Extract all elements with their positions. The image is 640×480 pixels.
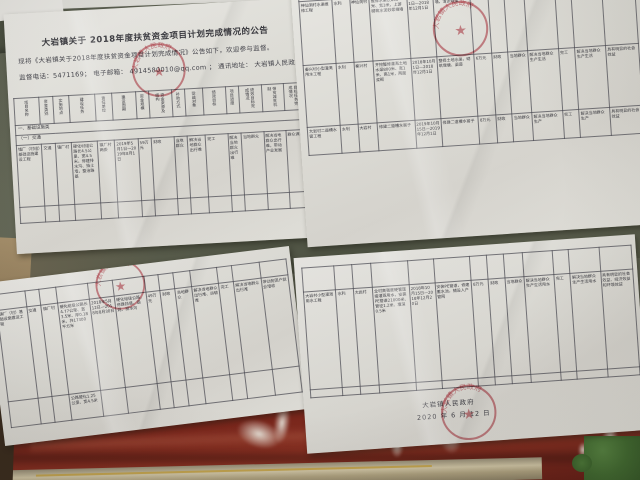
table-cell [191, 197, 210, 214]
table-cell [203, 375, 233, 404]
table-cell [75, 203, 102, 220]
table-cell [245, 194, 268, 211]
project-table: 大岩村小型灌溉用水工程水利大岩村全村高强度硬管连接灌溉用水，安装PE管道2100… [301, 245, 640, 399]
project-table-wrap: 大岩村小型灌溉用水工程水利大岩村全村高强度硬管连接灌溉用水，安装PE管道2100… [301, 245, 640, 399]
empty-cell [310, 388, 343, 398]
table-cell [101, 202, 119, 219]
table-cell: 具有明显的社会效益 [610, 105, 640, 135]
column-header: 建设任务 [69, 94, 97, 122]
table-cell: 2018年10月1日—2018年12月1日 [410, 57, 440, 121]
table-cell: 维修水渠长800米、宽3米，上游砌筑水泥砂浆挡墙 [369, 0, 410, 61]
table-cell: 修建二道槽水窖子 [377, 120, 416, 150]
table-cell [45, 205, 60, 222]
table-cell: 神仙洞村水渠维修工程 [299, 0, 336, 66]
column-header: 项目进度 [225, 86, 240, 114]
empty-cell [511, 374, 531, 383]
table-cell: 解决当地群众生产 [579, 107, 612, 137]
table-cell: 具有明显的社会效益 [605, 43, 640, 107]
table-cell: 解决当地群众生产生活用水 [523, 0, 558, 51]
table-cell: 整修土地水渠，砌筑堰塘、渠道 [437, 54, 478, 118]
table-cell [59, 204, 76, 221]
empty-cell [577, 369, 608, 379]
table-cell: 2019年10月15日—2019年12月1日 [415, 119, 443, 149]
official-seal: 大岩镇人民政府★ [438, 381, 500, 443]
empty-cell [351, 263, 372, 288]
table-cell [141, 200, 156, 217]
table-cell [272, 366, 302, 395]
table-cell: 8万元 [478, 115, 497, 144]
table-cell [20, 206, 46, 223]
table-cell: 大岩村 [358, 123, 380, 152]
notice-paper-bottom-right: 大岩村小型灌溉用水工程水利大岩村全村高强度硬管连接灌溉用水，安装PE管道2100… [294, 234, 640, 453]
seal-graphic: 大岩镇人民政府★ [129, 40, 188, 99]
table-cell: 秦兴村小型灌溉用水工程 [303, 63, 340, 127]
green-foliage-corner [584, 436, 640, 480]
table-cell [209, 196, 232, 213]
notice-paper-top-left: 大岩镇关于 2018年度扶贫资金项目计划完成情况的公告 现将《大岩镇关于2018… [4, 0, 317, 254]
empty-cell [503, 253, 524, 278]
table-cell [8, 398, 40, 427]
column-header: 绩效目标完成情况 [239, 85, 263, 113]
empty-cell [302, 266, 336, 292]
star-icon: ★ [454, 23, 468, 40]
svg-text:大岩镇人民政府: 大岩镇人民政府 [430, 0, 477, 30]
empty-cell [379, 382, 416, 393]
seal-graphic: 大岩镇人民政府★ [430, 0, 492, 59]
column-header: 项目名称 [14, 97, 41, 125]
empty-cell [599, 245, 633, 271]
project-table-wrap: 镇厂（村）基础设施建设工程交通镇厂村硬化组级公路长4.77公里、宽3.5米、厚0… [0, 258, 303, 428]
table-cell: 当地群众 [512, 113, 534, 142]
empty-cell [407, 259, 434, 285]
table-cell: 解决当地群众生产生活用水 [571, 0, 606, 48]
table-cell [267, 192, 290, 209]
column-header: 带贫减贫机制 [261, 84, 285, 112]
table-cell [125, 384, 160, 414]
svg-text:大岩镇人民政府: 大岩镇人民政府 [438, 381, 485, 413]
empty-cell [607, 367, 640, 377]
table-cell [118, 201, 142, 218]
table-cell: 硬化村组公路长4.5公里、宽4.5米，修建排水沟、挡土墙，整治路基 [71, 141, 101, 204]
empty-cell [569, 247, 601, 273]
empty-cell [487, 254, 505, 279]
table-cell: 2019年5月1日—2019年8月1日 [115, 139, 142, 202]
project-table: 项目名称资金类别实施地点建设任务责任单位建设周期资金规模资金来源及结构补助方式受… [13, 82, 311, 224]
table-cell: 水利 [340, 124, 359, 153]
table-cell [245, 369, 275, 398]
empty-cell [433, 256, 471, 282]
star-icon: ★ [153, 65, 166, 81]
official-seal: 大岩镇人民政府★ [430, 0, 492, 59]
empty-cell [561, 371, 578, 380]
empty-cell [552, 249, 570, 274]
empty-cell [522, 251, 554, 277]
table-cell [155, 199, 178, 216]
empty-cell [343, 386, 361, 395]
empty-cell [371, 261, 409, 287]
table-cell: 财政 [496, 114, 514, 143]
column-header: 资金类别 [39, 96, 54, 124]
table-cell: 具有明显的社会效益 [601, 0, 638, 46]
table-cell [231, 195, 246, 212]
project-table: 镇厂（村）基础设施建设工程交通镇厂村硬化组级公路长4.77公里、宽3.5米、厚0… [0, 258, 303, 428]
official-seal: 大岩镇人民政府★ [129, 40, 188, 99]
table-cell: 修建二道槽水窖子 [441, 116, 480, 146]
photo-of-notices-on-wall: 大岩镇关于 2018年度扶贫资金项目计划完成情况的公告 现将《大岩镇关于2018… [0, 0, 640, 480]
table-cell: 解决当地群众生产 [532, 111, 565, 141]
table-cell: 大岩村二道槽水窖工程 [307, 125, 342, 155]
star-icon: ★ [114, 278, 127, 294]
table-cell: 解决当地群众生产生活 [528, 49, 563, 113]
table-cell: 完工 [562, 109, 580, 138]
table-cell: 镇厂（村组）基础设施建设工程 [16, 144, 45, 207]
empty-cell [360, 385, 380, 394]
empty-cell [531, 372, 562, 382]
table-cell: 具有明显的社会效益、经济效益和环境效益 [600, 269, 639, 369]
table-cell: 解决当地群众生产生活 [575, 46, 610, 110]
table-cell: 公路硬化1.25公里、宽4.5米 [69, 391, 104, 421]
table-cell [100, 387, 128, 416]
column-header: 实施地点 [53, 96, 70, 124]
column-header: 绩效目标 [203, 87, 227, 115]
seal-graphic: 大岩镇人民政府★ [438, 381, 500, 443]
svg-text:大岩镇人民政府: 大岩镇人民政府 [129, 40, 174, 71]
notice-paper-top-right: 神仙洞村水渠维修工程水利神仙洞村维修水渠长800米、宽3米，上游砌筑水泥砂浆挡墙… [289, 0, 640, 247]
empty-cell [470, 255, 489, 280]
empty-cell [334, 265, 353, 290]
empty-cell [495, 376, 512, 385]
project-table-wrap: 项目名称资金类别实施地点建设任务责任单位建设周期资金规模资金来源及结构补助方式受… [13, 82, 311, 224]
table-cell [177, 198, 192, 215]
star-icon: ★ [462, 406, 476, 423]
column-header: 责任单位 [95, 93, 113, 121]
table-cell: 开挖整修灌溉土地水渠800米、宽1米、高1米，两面浆砌 [373, 58, 414, 122]
